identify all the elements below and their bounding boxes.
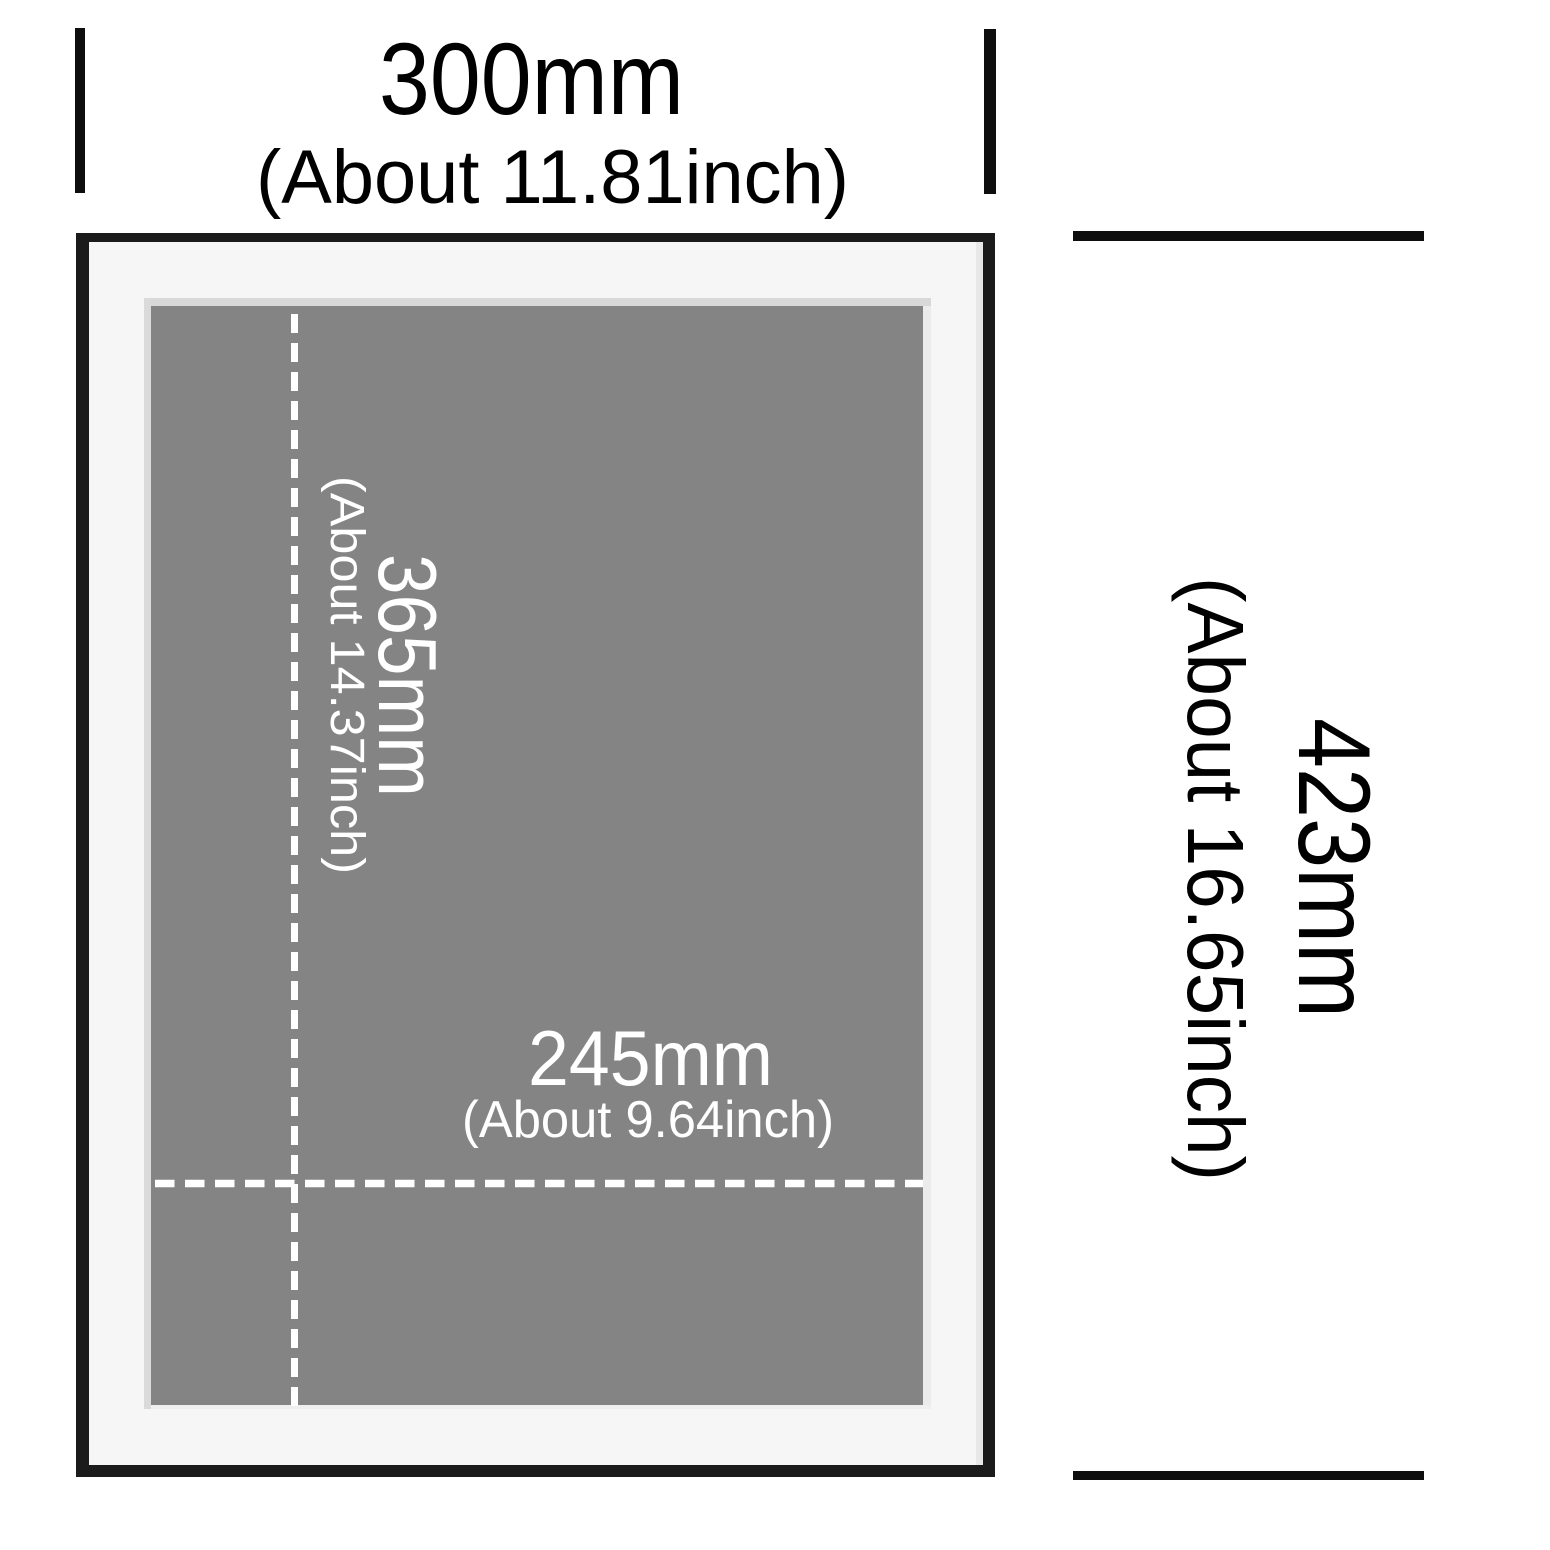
svg-text:(About 9.64inch): (About 9.64inch) (462, 1091, 834, 1149)
svg-text:365mm: 365mm (361, 554, 454, 797)
svg-text:245mm: 245mm (528, 1014, 773, 1102)
svg-text:(About 11.81inch): (About 11.81inch) (256, 135, 849, 220)
svg-text:(About 14.37inch): (About 14.37inch) (320, 476, 373, 874)
svg-text:300mm: 300mm (379, 22, 684, 136)
svg-text:(About 16.65inch): (About 16.65inch) (1171, 577, 1260, 1181)
svg-text:423mm: 423mm (1277, 718, 1391, 1018)
